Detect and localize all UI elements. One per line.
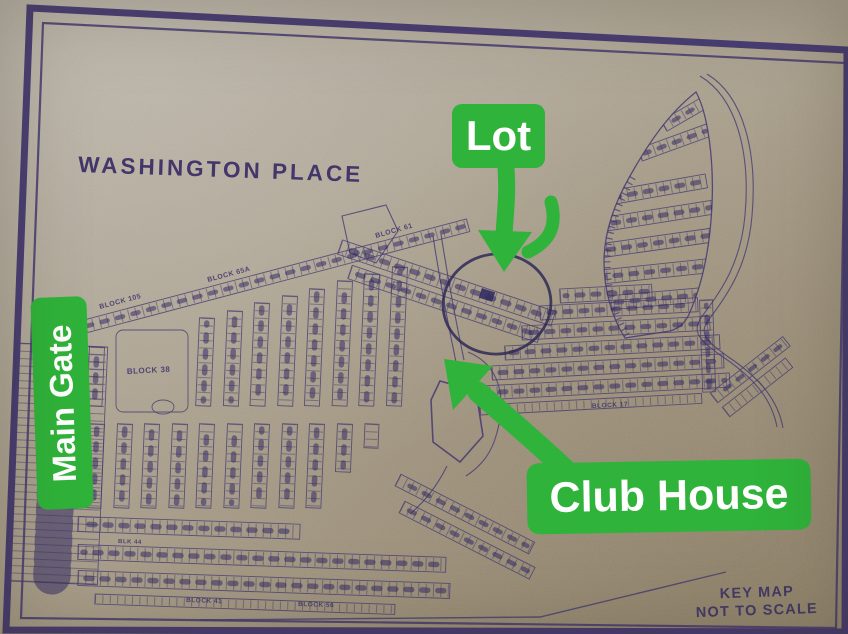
block-label-44: BLK 44 bbox=[118, 539, 142, 546]
main-gate-label-text: Main Gate bbox=[43, 324, 81, 483]
club-house-label: Club House bbox=[526, 459, 811, 535]
club-house-label-text: Club House bbox=[549, 473, 789, 520]
block-label-41: BLOCK 41 bbox=[186, 597, 222, 605]
blueprint-map: WASHINGTON PLACE bbox=[0, 0, 848, 634]
main-gate-label: Main Gate bbox=[30, 296, 93, 510]
block-label-56: BLOCK 56 bbox=[298, 601, 334, 609]
blueprint-photo: WASHINGTON PLACE bbox=[0, 0, 848, 634]
lot-label: Lot bbox=[452, 104, 545, 168]
lot-label-text: Lot bbox=[466, 115, 531, 157]
keymap-caption-line1: KEY MAP bbox=[720, 584, 795, 603]
